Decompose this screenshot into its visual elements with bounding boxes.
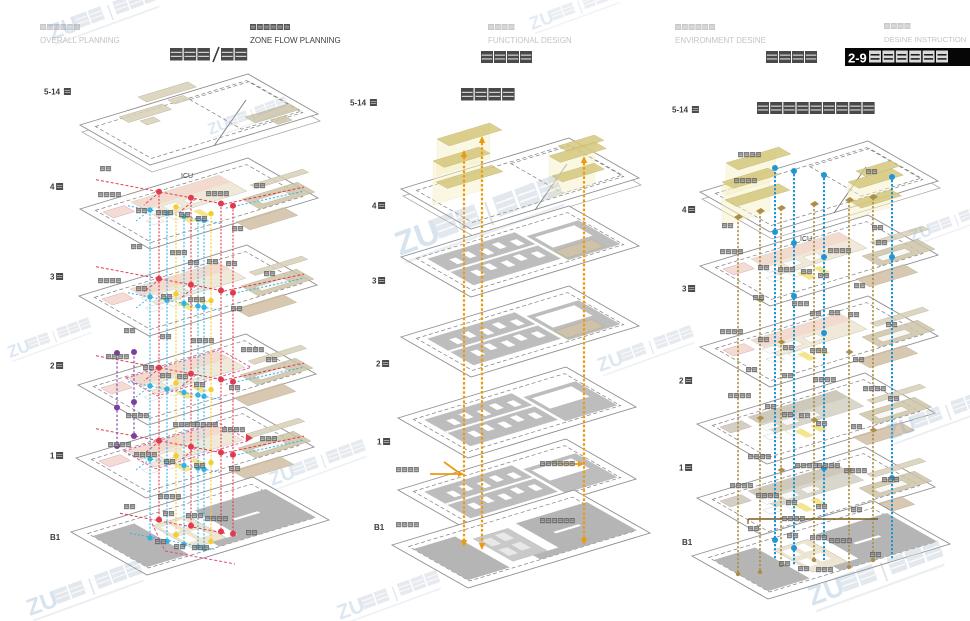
svg-text:DESINE INSTRUCTION: DESINE INSTRUCTION xyxy=(884,35,966,44)
svg-text:4: 4 xyxy=(50,183,55,192)
svg-text:5-14: 5-14 xyxy=(44,88,61,97)
svg-text:ICU: ICU xyxy=(181,173,193,180)
svg-text:2: 2 xyxy=(376,360,381,369)
svg-text:2: 2 xyxy=(50,362,55,371)
svg-text:ENVIRONMENT DESINE: ENVIRONMENT DESINE xyxy=(675,36,766,45)
svg-text:5-14: 5-14 xyxy=(672,106,689,115)
svg-text:3: 3 xyxy=(682,285,687,294)
svg-text:1: 1 xyxy=(679,464,684,473)
svg-text:4: 4 xyxy=(682,206,687,215)
svg-text:2: 2 xyxy=(679,377,684,386)
svg-text:B1: B1 xyxy=(374,523,385,532)
svg-text:4: 4 xyxy=(372,202,377,211)
svg-text:FUNCTIONAL DESIGN: FUNCTIONAL DESIGN xyxy=(488,36,572,45)
svg-text:ICU: ICU xyxy=(800,236,812,243)
svg-text:2-9: 2-9 xyxy=(848,51,867,66)
svg-text:1: 1 xyxy=(377,438,382,447)
svg-text:ZONE FLOW PLANNING: ZONE FLOW PLANNING xyxy=(250,36,341,45)
svg-text:B1: B1 xyxy=(682,538,693,547)
svg-text:B1: B1 xyxy=(50,533,61,542)
svg-text:1: 1 xyxy=(50,452,55,461)
svg-text:3: 3 xyxy=(50,273,55,282)
svg-text:3: 3 xyxy=(372,277,377,286)
svg-text:5-14: 5-14 xyxy=(350,99,367,108)
